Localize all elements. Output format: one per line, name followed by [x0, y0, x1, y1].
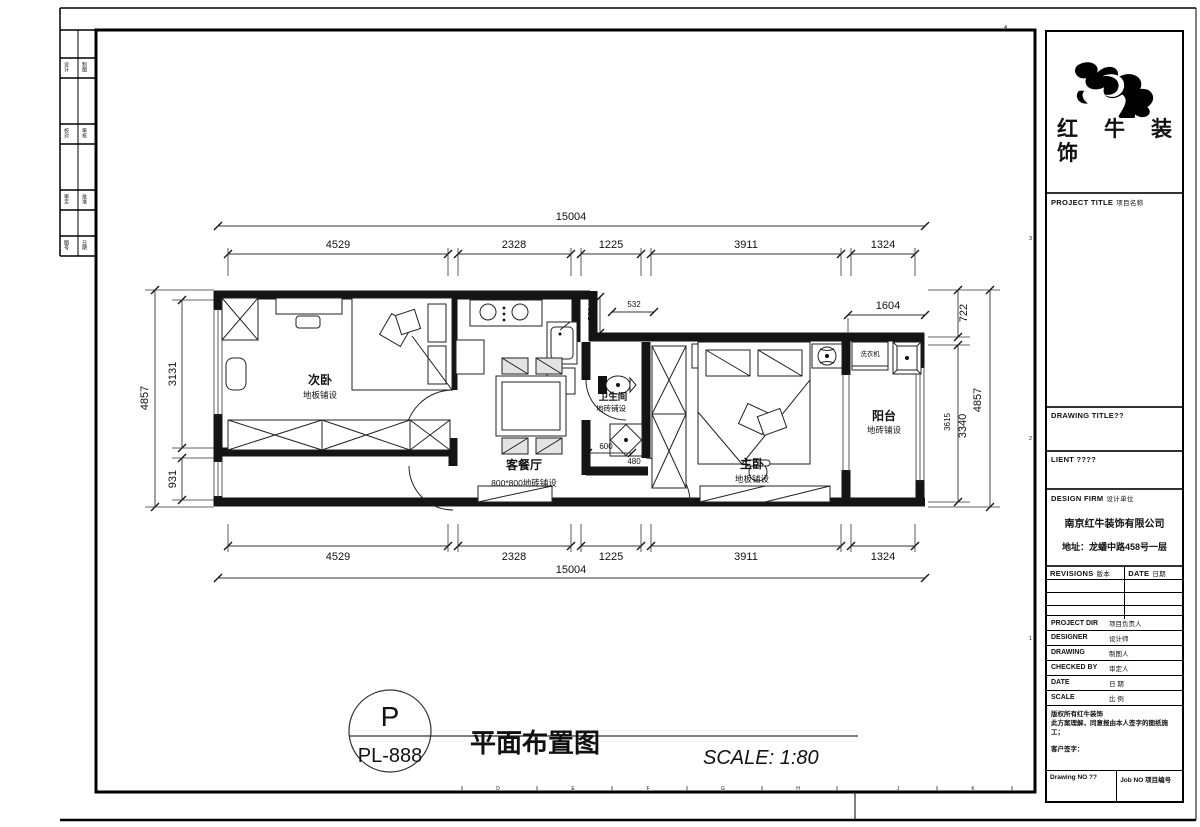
date-col-cn: 日期 [1152, 571, 1166, 578]
svg-text:3131: 3131 [167, 362, 179, 386]
svg-text:931: 931 [167, 470, 179, 488]
washing-machine: 洗衣机 [852, 342, 888, 370]
drawing-title-header: DRAWING TITLE?? [1047, 406, 1182, 420]
row-cn: 项目负责人 [1109, 618, 1142, 628]
room-sub-bedroom2: 地板铺设 [303, 390, 338, 400]
client-space [1047, 464, 1182, 488]
row-cn: 比 例 [1109, 693, 1124, 703]
strip-label: 校对 [63, 127, 69, 138]
row-en: DATE [1051, 679, 1109, 686]
bedroom2-window [214, 308, 222, 416]
room-label-bath: 卫生间 [599, 391, 628, 403]
nightstand-right [812, 344, 842, 368]
svg-text:4529: 4529 [326, 551, 350, 563]
dims-left: 3131 931 4857 [139, 286, 214, 511]
dims-right: 722 3615 3340 4857 [928, 286, 1000, 511]
revisions-cn: 版本 [1097, 571, 1111, 578]
balcony-basin [893, 342, 921, 374]
shower [610, 424, 642, 456]
design-firm-section: DESIGN FIRM设计单位 南京红牛装饰有限公司 地址：龙蟠中路458号一层 [1047, 488, 1182, 566]
lower-left-window [214, 460, 222, 498]
room-label-balcony: 阳台 [872, 408, 896, 423]
svg-text:1: 1 [1029, 636, 1032, 642]
number-row: Drawing NO ?? Job NO 项目编号 [1047, 770, 1182, 801]
project-title-en: PROJECT TITLE [1051, 198, 1113, 207]
svg-text:4857: 4857 [139, 386, 151, 410]
client-signature-label: 客户签字： [1051, 745, 1178, 754]
dims-top: 15004 4529 2328 1225 3911 1324 [214, 211, 929, 276]
svg-text:536: 536 [587, 307, 596, 321]
row-en: PROJECT DIR [1051, 620, 1109, 627]
copyright-line1: 版权所有红牛装饰 [1051, 710, 1178, 719]
row-cn: 设计师 [1109, 633, 1129, 643]
row-drawing: DRAWING 制图人 [1047, 645, 1182, 660]
row-en: DESIGNER [1051, 634, 1109, 641]
svg-text:3911: 3911 [734, 551, 758, 563]
sheet-frame [60, 8, 1196, 820]
scale-note: SCALE: 1:80 [703, 747, 819, 769]
master-wardrobe [652, 346, 686, 488]
firm-address: 地址：龙蟠中路458号一层 [1047, 540, 1182, 553]
wardrobe2 [228, 420, 450, 450]
revision-row-empty [1047, 580, 1182, 593]
client-en: LIENT ???? [1051, 455, 1096, 464]
strip-label: 制图 [81, 61, 87, 73]
row-cn: 日 期 [1109, 678, 1124, 688]
svg-text:15004: 15004 [556, 211, 587, 223]
detail-tag-number: PL-888 [358, 745, 423, 767]
drawing-title: 平面布置图 [470, 728, 600, 758]
row-cn: 制图人 [1109, 648, 1129, 658]
drawing-title-en: DRAWING TITLE?? [1051, 411, 1124, 420]
bedroom2-furniture [222, 298, 452, 450]
svg-text:3: 3 [1029, 236, 1032, 242]
drawing-no-label: Drawing NO ?? [1047, 771, 1117, 801]
room-label-master: 主卧 [740, 456, 764, 471]
project-title-space [1047, 207, 1182, 406]
firm-name: 南京红牛装饰有限公司 [1047, 515, 1182, 530]
stove [470, 300, 542, 326]
svg-text:2: 2 [1029, 436, 1032, 442]
brand-char: 牛 [1104, 118, 1125, 142]
title-block: 红 牛 装 饰 PROJECT TITLE项目名称 DRAWING TITLE?… [1045, 30, 1184, 803]
shoe-cabinet [478, 486, 552, 502]
copyright-section: 版权所有红牛装饰 此方案理解，同意报由本人签字的图纸施工； 客户签字： [1047, 705, 1182, 771]
svg-text:F: F [646, 786, 649, 792]
client-header: LIENT ???? [1047, 450, 1182, 464]
dining-set [496, 358, 566, 454]
desk-chair [296, 316, 320, 328]
room-label-living: 客餐厅 [505, 457, 542, 472]
room-sub-bath: 地砖铺设 [596, 403, 626, 413]
row-scale: SCALE 比 例 [1047, 690, 1182, 705]
row-en: CHECKED BY [1051, 664, 1109, 671]
strip-label: 批准 [81, 193, 87, 205]
floor-plan: 洗衣机 次卧 地板铺设 客餐厅 800*800地砖铺设 卫生间 地砖铺设 主卧 … [139, 211, 1000, 582]
sheet-canvas: 设计 制图 校对 审核 审定 批准 图号 日期 4 3 2 1 D E F G … [0, 0, 1200, 827]
project-title-cn: 项目名称 [1116, 200, 1143, 207]
svg-text:3340: 3340 [957, 414, 969, 438]
svg-text:2328: 2328 [502, 551, 526, 563]
zone-digits: 4 3 2 1 [1004, 25, 1032, 642]
svg-text:4: 4 [1004, 25, 1007, 31]
bed2 [352, 298, 452, 390]
master-bed [698, 342, 810, 464]
strip-label: 设计 [63, 61, 69, 73]
svg-text:D: D [496, 786, 500, 792]
brand-name-line1: 红 牛 装 [1047, 118, 1182, 142]
svg-text:600: 600 [599, 442, 613, 451]
room-sub-living: 800*800地砖铺设 [491, 478, 557, 488]
room-sub-master: 地板铺设 [735, 474, 770, 484]
strip-label: 审核 [81, 127, 87, 139]
binding-strip: 设计 制图 校对 审核 审定 批准 图号 日期 [60, 8, 96, 256]
brand-char: 装 [1151, 118, 1172, 142]
balcony-slider [843, 373, 849, 472]
row-checked-by: CHECKED BY 审定人 [1047, 660, 1182, 675]
svg-text:480: 480 [627, 457, 641, 466]
svg-text:4529: 4529 [326, 239, 350, 251]
svg-text:1225: 1225 [599, 551, 623, 563]
project-title-header: PROJECT TITLE项目名称 [1047, 194, 1182, 207]
drawing-title-space [1047, 420, 1182, 450]
svg-text:H: H [796, 786, 800, 792]
svg-text:722: 722 [958, 304, 970, 322]
brand-char: 红 [1057, 118, 1078, 142]
balcony-fixtures: 洗衣机 [852, 342, 921, 374]
svg-text:532: 532 [627, 300, 641, 309]
svg-text:4857: 4857 [972, 388, 984, 412]
drawing-sheet: { "brand": {"chars": ["红", "牛", "装", "饰"… [0, 0, 1200, 827]
revision-row-empty [1047, 593, 1182, 606]
svg-text:2328: 2328 [502, 239, 526, 251]
revision-row-empty [1047, 606, 1182, 619]
svg-text:1324: 1324 [871, 551, 895, 563]
brand-name-line2: 饰 [1047, 142, 1182, 166]
svg-text:3911: 3911 [734, 239, 758, 251]
svg-text:G: G [721, 786, 725, 792]
room-label-bedroom2: 次卧 [308, 372, 332, 387]
detail-tag-letter: P [381, 701, 400, 732]
revisions-table: REVISIONS版本 DATE日期 [1047, 565, 1182, 615]
brand-char: 饰 [1057, 142, 1078, 165]
copyright-line2: 此方案理解，同意报由本人签字的图纸施工； [1051, 719, 1178, 737]
washer-label: 洗衣机 [860, 349, 880, 358]
row-designer: DESIGNER 设计师 [1047, 630, 1182, 645]
svg-text:15004: 15004 [556, 564, 587, 576]
row-en: SCALE [1051, 694, 1109, 701]
brand-area: 红 牛 装 饰 [1047, 32, 1182, 194]
dims-bottom: 4529 2328 1225 3911 1324 15004 [214, 524, 929, 582]
design-firm-cn: 设计单位 [1106, 496, 1133, 503]
redbull-logo [1070, 60, 1160, 118]
footer-title: P PL-888 平面布置图 SCALE: 1:80 [349, 690, 858, 772]
svg-text:1604: 1604 [876, 300, 900, 312]
room-sub-balcony: 地砖铺设 [867, 425, 902, 435]
revisions-en: REVISIONS [1050, 569, 1094, 578]
side-chair [226, 358, 246, 390]
date-col-en: DATE [1128, 569, 1149, 578]
strip-label: 审定 [63, 193, 69, 205]
svg-text:3615: 3615 [943, 413, 952, 431]
svg-text:1225: 1225 [599, 239, 623, 251]
job-no-label: Job NO 项目编号 [1117, 771, 1182, 801]
row-cn: 审定人 [1109, 663, 1129, 673]
row-date: DATE 日 期 [1047, 675, 1182, 690]
design-firm-en: DESIGN FIRM [1051, 494, 1103, 503]
svg-text:1324: 1324 [871, 239, 895, 251]
strip-label: 图号 [63, 240, 69, 251]
strip-label: 日期 [81, 240, 87, 251]
balcony-window [916, 366, 924, 482]
row-en: DRAWING [1051, 649, 1109, 656]
